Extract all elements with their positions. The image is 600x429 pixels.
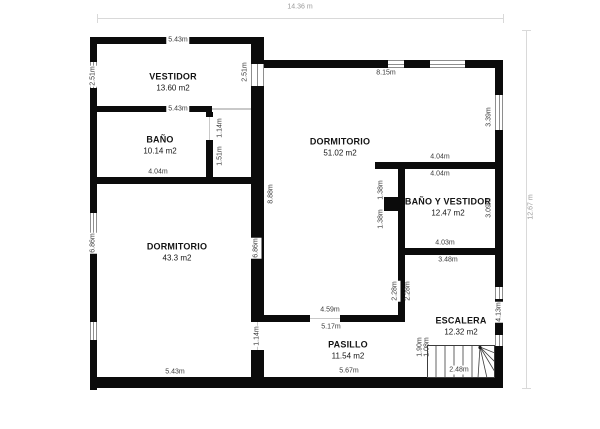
room-dormitorio-grande: DORMITORIO 51.02 m2 [310,137,370,158]
dim-divider-right: 2.28m [405,281,412,300]
room-dormitorio-area: 43.3 m2 [147,254,207,263]
dim-bano-door: 1.14m [217,118,224,137]
dim-pasillo-door: 1.14m [252,325,263,346]
room-bano-area: 10.14 m2 [143,147,176,156]
dim-divider-left: 2.28m [390,280,401,301]
room-vestidor-area: 13.60 m2 [149,84,197,93]
wall-outer-bottom [90,377,503,388]
dim-pasillo-top-outer: 4.59m [320,307,339,314]
dimension-tick [503,14,504,23]
wall-pasillo-top-left [251,315,310,322]
dim-dorm51-right: 3.39m [486,107,493,126]
room-bano-y-vestidor-area: 12.47 m2 [405,209,491,218]
dimension-tick [522,30,531,31]
room-pasillo-area: 11.54 m2 [328,352,368,361]
dim-duct-bottom: 1.38m [378,209,385,228]
room-pasillo: PASILLO 11.54 m2 [328,340,368,361]
dim-pasillo-top-inner: 5.17m [321,324,340,331]
dim-dorm43-left: 6.86m [88,232,99,253]
room-escalera-area: 12.32 m2 [435,328,486,337]
dim-bano-wall: 1.51m [217,146,224,165]
dim-vestidor-right: 2.51m [242,62,249,81]
dim-vestidor-bottom: 5.43m [166,105,189,114]
dimension-tick [522,388,531,389]
dim-dorm51-left: 8.88m [268,184,275,203]
duct-column [384,197,398,211]
window-escalera-a [495,287,503,299]
window-dorm51-right [495,95,503,130]
wall-bano-bottom [90,177,251,184]
window-dorm51-top-b [430,60,465,68]
dim-dorm51-top: 8.15m [376,70,395,77]
dim-stairs-bottom: 2.48m [447,366,470,375]
wall-banovestidor-top [375,162,495,169]
dim-pasillo-bottom: 5.67m [337,367,360,376]
overall-width-label: 14.36 m [287,4,312,11]
wall-banovestidor-bottom [398,248,503,255]
floor-plan: 14.36 m 12.67 m [0,0,600,429]
room-bano-y-vestidor: BAÑO Y VESTIDOR 12.47 m2 [405,197,491,218]
wall-vestidor-bottom [97,106,212,112]
door-vestidor-passage [212,106,251,112]
window-escalera-b [495,335,503,346]
dim-banovestidor-top-outer: 4.04m [430,154,449,161]
dim-banovestidor-top-inner: 4.04m [430,171,449,178]
dim-stairs-left-b: 1.08m [424,337,431,356]
room-pasillo-name: PASILLO [328,340,368,350]
dim-dorm43-bottom: 5.43m [163,368,186,377]
dim-escalera-right: 4.13m [494,301,505,322]
room-dormitorio-grande-name: DORMITORIO [310,137,370,147]
room-bano-y-vestidor-name: BAÑO Y VESTIDOR [405,197,491,207]
room-bano-name: BAÑO [143,135,176,145]
window-vestidor-right [251,64,264,86]
room-dormitorio-name: DORMITORIO [147,242,207,252]
room-dormitorio: DORMITORIO 43.3 m2 [147,242,207,263]
dim-dorm43-right: 6.86m [251,237,262,258]
room-escalera-name: ESCALERA [435,316,486,326]
door-bano [206,117,213,140]
room-bano: BAÑO 10.14 m2 [143,135,176,156]
dim-banovestidor-right: 3.09m [486,198,493,217]
wall-pasillo-top-right [340,315,398,322]
wall-dorm43-right-lower [251,350,264,377]
window-dorm43-lower [90,322,97,340]
dim-bano-bottom: 4.04m [148,169,167,176]
room-vestidor: VESTIDOR 13.60 m2 [149,72,197,93]
dimension-tick [97,14,98,23]
room-dormitorio-grande-area: 51.02 m2 [310,149,370,158]
dim-duct-top: 1.38m [378,180,385,199]
dim-vestidor-top: 5.43m [166,36,189,45]
dim-banovestidor-bottom-inner: 4.03m [435,240,454,247]
dim-stairs-left-a: 1.90m [417,337,424,356]
overall-height-label: 12.67 m [528,194,535,219]
door-pasillo [310,315,340,322]
dim-vestidor-left: 2.51m [88,65,99,86]
room-escalera: ESCALERA 12.32 m2 [435,316,486,337]
room-vestidor-name: VESTIDOR [149,72,197,82]
wall-outer-top-right [257,60,503,68]
dim-banovestidor-bottom-outer: 3.48m [438,257,457,264]
window-dorm51-top-a [388,60,404,68]
dimension-line-top [97,18,503,19]
